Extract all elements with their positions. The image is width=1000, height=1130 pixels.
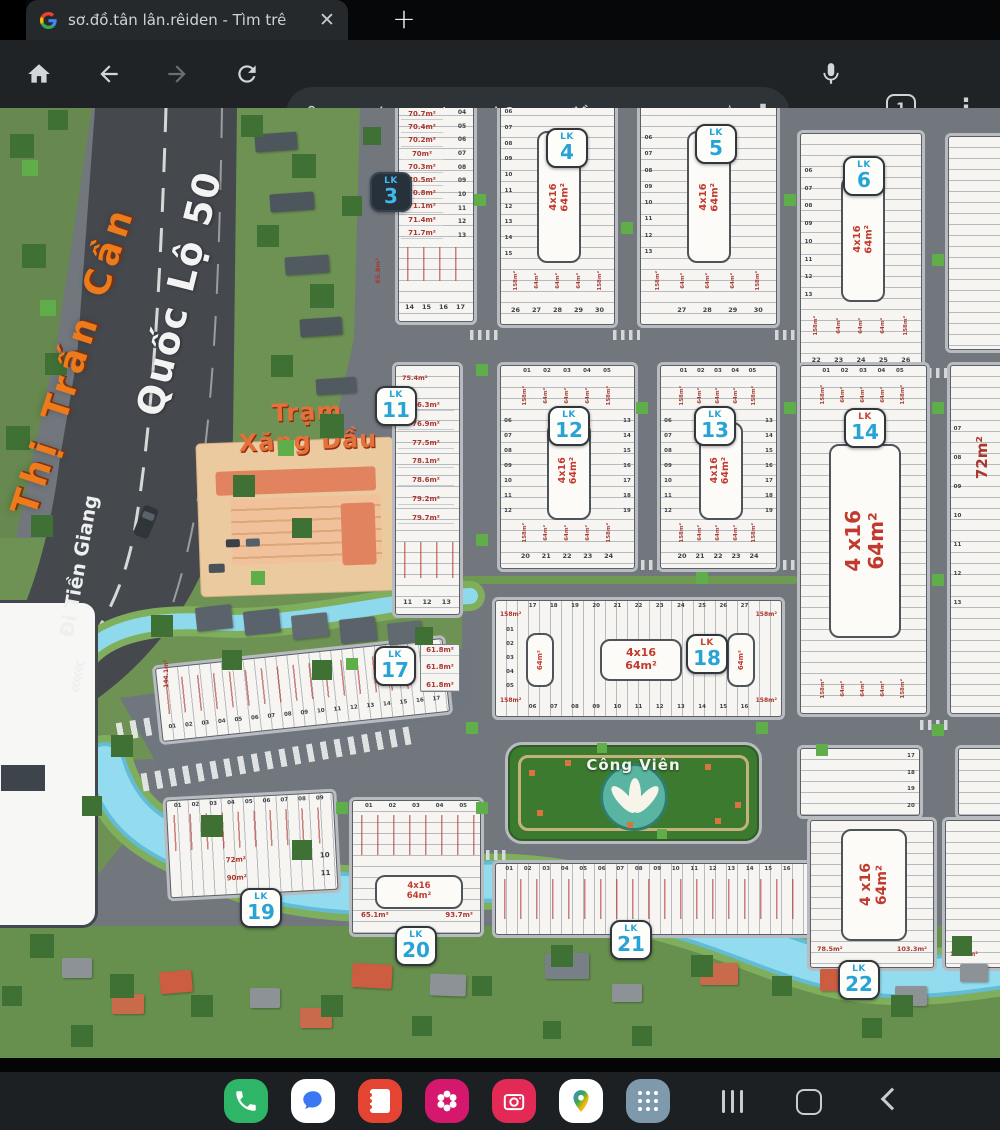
plot-number: 18 — [621, 493, 633, 499]
plot-number: 09 — [502, 156, 515, 162]
plot-number: 18 — [543, 603, 564, 612]
plot-number: 06 — [642, 135, 655, 141]
plot-number: 16 — [763, 463, 775, 469]
plot-number: 05 — [453, 123, 471, 130]
plot-number: 19 — [621, 508, 633, 514]
plot-number: 22 — [709, 552, 727, 562]
plot-area-label: 64m² — [840, 387, 846, 403]
plot-number: 07 — [952, 426, 963, 432]
plot-area-label: 158m² — [900, 679, 906, 699]
plot-area-label: 64m² — [715, 388, 721, 404]
reload-icon — [234, 61, 260, 87]
back-nav-button[interactable] — [881, 1088, 904, 1111]
plot-number: 03 — [557, 368, 577, 377]
tab-strip: sơ.đồ.tân lân.rêiden - Tìm trê ✕ + — [0, 0, 1000, 40]
map-image[interactable]: TrạmXăng Dầu 70.7m²70.4m²70.2m²70m²70.3m… — [0, 108, 1000, 1058]
plot-number: 06 — [662, 418, 674, 424]
plot-number: 20 — [586, 603, 607, 612]
plot-number: 10 — [607, 704, 628, 713]
plot-area-label: 64m² — [555, 273, 561, 289]
plot-number: 20 — [673, 552, 691, 562]
block-lk12: 0102030405 158m²64m²64m²64m²158m² 060708… — [500, 365, 635, 569]
plot-number: 14 — [502, 235, 515, 241]
plot-number: 11 — [502, 493, 514, 499]
block-badge-lk4: LK4 — [546, 128, 588, 168]
plot-number: 16 — [435, 303, 452, 313]
plot-number: 03 — [709, 368, 726, 377]
plot-area-label: 61.8m² — [421, 645, 459, 656]
plot-number: 17 — [522, 603, 543, 612]
block-partial: 07080910111213 72m² — [950, 365, 1000, 714]
plot-number: 04 — [556, 866, 575, 876]
plot-number: 03 — [504, 655, 516, 661]
plot-area-label: 64m² — [543, 388, 549, 404]
plot-area-label: 158m² — [820, 679, 826, 699]
plot-number: 19 — [564, 603, 585, 612]
plot-number: 12 — [649, 704, 670, 713]
plot-number: 05 — [744, 368, 761, 377]
plot-number: 08 — [502, 141, 515, 147]
block-badge-lk14: LK14 — [844, 408, 886, 448]
plot-number: 27 — [734, 603, 755, 612]
plot-area-label: 158m² — [655, 271, 661, 291]
plot-number: 16 — [778, 866, 797, 876]
plot-area-label: 64m² — [715, 525, 721, 541]
plot-number: 12 — [417, 598, 436, 608]
plot-area-label: 64m² — [730, 273, 736, 289]
house — [315, 377, 356, 396]
home-icon — [26, 61, 52, 87]
tab-title: sơ.đồ.tân lân.rêiden - Tìm trê — [68, 0, 318, 40]
plot-number: 13 — [502, 219, 515, 225]
house — [250, 988, 280, 1008]
plot-number: 04 — [453, 109, 471, 116]
plot-number: 09 — [648, 866, 667, 876]
plot-area-label: 70.4m² — [401, 122, 443, 133]
plot-number: 11 — [952, 542, 963, 548]
plot-number: 07 — [453, 150, 471, 157]
home-button[interactable] — [20, 55, 58, 93]
plot-number: 24 — [670, 603, 691, 612]
plot-number: 13 — [621, 418, 633, 424]
block-lk18: 1718192021222324252627 06070809101112131… — [495, 600, 782, 717]
plot-number: 05 — [504, 683, 516, 689]
plot-number: 04 — [222, 800, 240, 811]
home-nav-button[interactable] — [796, 1089, 822, 1115]
plot-number: 07 — [502, 433, 514, 439]
plot-area-label: 64m² — [585, 388, 591, 404]
block-badge-lk12: LK12 — [548, 406, 590, 446]
house — [351, 963, 392, 989]
new-tab-button[interactable]: + — [382, 0, 426, 40]
block-lk13: 0102030405 158m²64m²64m²64m²158m² 060708… — [660, 365, 777, 569]
plot-number: 13 — [952, 600, 963, 606]
plot-number: 04 — [727, 368, 744, 377]
plot-area-label: 70.2m² — [401, 135, 443, 146]
plot-number: 01 — [500, 866, 519, 876]
plot-number: 12 — [704, 866, 723, 876]
plot-number: 07 — [543, 704, 564, 713]
plot-area-label: 158m² — [751, 386, 757, 406]
block-badge-lk6: LK6 — [843, 156, 885, 196]
plot-number: 10 — [662, 478, 674, 484]
plot-number: 06 — [593, 866, 612, 876]
plot-number: 12 — [952, 571, 963, 577]
plot-number: 22 — [628, 603, 649, 612]
plot-number: 15 — [502, 251, 515, 257]
plot-number: 02 — [180, 721, 198, 734]
microphone-icon — [818, 61, 844, 87]
plot-number: 01 — [357, 803, 381, 813]
plot-number: 07 — [802, 186, 815, 192]
plot-number: 15 — [395, 699, 413, 712]
block-partial — [948, 136, 1000, 350]
plot-number: 28 — [695, 306, 721, 316]
phone-app-icon[interactable] — [224, 1079, 268, 1123]
plot-number: 12 — [662, 508, 674, 514]
plot-number: 21 — [607, 603, 628, 612]
plot-number: 17 — [905, 753, 917, 759]
plot-number: 11 — [642, 216, 655, 222]
plot-area-label: 158m² — [751, 523, 757, 543]
plot-number: 15 — [759, 866, 778, 876]
plot-area-label: 78.6m² — [398, 475, 454, 486]
plot-number: 13 — [763, 418, 775, 424]
plot-number: 05 — [597, 368, 617, 377]
plot-number: 06 — [257, 798, 275, 809]
plot-number: 06 — [246, 714, 264, 727]
house — [291, 612, 329, 640]
plot-number: 12 — [502, 204, 515, 210]
plot-area-label: 64m² — [697, 388, 703, 404]
plot-number: 11 — [329, 706, 347, 719]
plot-number: 29 — [568, 306, 589, 316]
plot-number: 18 — [763, 493, 775, 499]
plot-number: 14 — [763, 433, 775, 439]
plot-area-label: 64m² — [564, 525, 570, 541]
screen-gap — [0, 1058, 1000, 1072]
plot-area-label: 61.8m² — [421, 662, 459, 673]
plot-area-label: 158m² — [679, 386, 685, 406]
plot-number: 05 — [891, 368, 909, 377]
plot-number: 14 — [401, 303, 418, 313]
plot-area-label: 144.1m² — [163, 660, 170, 688]
plot-area-label: 158m² — [755, 271, 761, 291]
block-lk21: 01020304050607080910111213141516 148.3m² — [495, 863, 819, 935]
plot-area-label: 64m² — [564, 388, 570, 404]
plot-number: 23 — [649, 603, 670, 612]
contacts-app-icon[interactable] — [358, 1079, 402, 1123]
plot-number: 24 — [745, 552, 763, 562]
plot-number: 02 — [835, 368, 853, 377]
plot-number: 10 — [312, 707, 330, 720]
plot-number: 10 — [802, 239, 815, 245]
plot-number: 08 — [502, 448, 514, 454]
house — [284, 254, 329, 275]
house — [430, 973, 467, 996]
plot-number: 10 — [453, 191, 471, 198]
reload-button[interactable] — [228, 55, 266, 93]
plot-number: 11 — [628, 704, 649, 713]
block-partial: 111.4m² — [945, 820, 1000, 968]
plot-number: 17 — [452, 303, 469, 313]
plot-number: 04 — [577, 368, 597, 377]
plot-number: 04 — [504, 669, 516, 675]
plot-number: 09 — [296, 709, 314, 722]
plot-number: 03 — [197, 719, 215, 732]
park-area: Công Viên — [508, 745, 759, 841]
plot-area-label: 71.7m² — [401, 228, 443, 239]
plot-number: 11 — [398, 598, 417, 608]
block-badge-lk17: LK17 — [374, 646, 416, 686]
plot-area-label: 158m² — [522, 523, 528, 543]
plot-number: 10 — [642, 200, 655, 206]
crosswalk — [478, 850, 508, 860]
gallery-app-icon[interactable] — [425, 1079, 469, 1123]
plot-number: 16 — [621, 463, 633, 469]
block-badge-lk11: LK11 — [375, 386, 417, 426]
plot-area-label: 158m² — [900, 385, 906, 405]
plot-number: 15 — [621, 448, 633, 454]
plot-number: 11 — [662, 493, 674, 499]
plot-number: 08 — [952, 455, 963, 461]
plot-number: 02 — [504, 641, 516, 647]
block-lk19: 010203040506070809 72m²10 90m²11 — [166, 792, 339, 899]
plot-number: 09 — [802, 221, 815, 227]
block-lk20: 0102030405 4x1664m² 65.1m²93.7m² — [352, 800, 481, 934]
maps-app-icon[interactable] — [559, 1079, 603, 1123]
plot-number: 11 — [502, 188, 515, 194]
crosswalk — [613, 330, 640, 340]
messages-app-icon[interactable] — [291, 1079, 335, 1123]
plot-number: 09 — [311, 795, 329, 806]
plot-number: 20 — [515, 552, 536, 562]
plot-number: 26 — [713, 603, 734, 612]
plot-area-label: 64m² — [860, 681, 866, 697]
plot-number: 14 — [741, 866, 760, 876]
house — [243, 608, 281, 636]
plot-number: 16 — [734, 704, 755, 713]
block-lk3: 70.7m²70.4m²70.2m²70m²70.3m²70.5m²70.8m²… — [398, 108, 474, 322]
house — [195, 604, 233, 632]
plot-number: 06 — [453, 136, 471, 143]
plot-area-label: 158m² — [606, 523, 612, 543]
camera-app-icon[interactable] — [492, 1079, 536, 1123]
plot-number: 17 — [621, 478, 633, 484]
plot-number: 05 — [230, 716, 248, 729]
plot-number: 04 — [213, 718, 231, 731]
house — [300, 1008, 332, 1028]
plot-number: 14 — [692, 704, 713, 713]
app-drawer-icon[interactable] — [626, 1079, 670, 1123]
browser-tab[interactable]: sơ.đồ.tân lân.rêiden - Tìm trê ✕ — [26, 0, 348, 40]
plot-number: 03 — [854, 368, 872, 377]
block-badge-lk20: LK20 — [395, 926, 437, 966]
plot-number: 08 — [662, 448, 674, 454]
plot-area-label: 79.2m² — [398, 494, 454, 505]
plot-number: 13 — [453, 232, 471, 239]
plot-area-label: 70.7m² — [401, 109, 443, 120]
plot-area-label: 64m² — [858, 318, 864, 334]
plot-number: 22 — [557, 552, 578, 562]
plot-number: 03 — [404, 803, 428, 813]
plot-number: 02 — [186, 801, 204, 812]
house — [895, 986, 927, 1006]
house — [254, 132, 297, 153]
crosswalk — [470, 330, 500, 340]
voice-search-button[interactable] — [812, 55, 850, 93]
block-badge-lk18: LK18 — [686, 634, 728, 674]
plot-number: 13 — [722, 866, 741, 876]
plot-area-label: 158m² — [513, 271, 519, 291]
google-favicon — [40, 12, 57, 29]
plot-number: 08 — [630, 866, 649, 876]
plot-number: 11 — [802, 257, 815, 263]
plot-area-label: 64m² — [880, 681, 886, 697]
block-badge-lk3: LK3 — [370, 172, 412, 212]
plot-area-label: 158m² — [522, 386, 528, 406]
plot-number: 01 — [164, 723, 182, 736]
plot-number: 20 — [905, 803, 917, 809]
house — [700, 963, 738, 985]
plot-number: 10 — [502, 172, 515, 178]
plot-area-label: 65.8m² — [374, 258, 382, 284]
back-arrow-icon — [96, 61, 122, 87]
plot-number: 18 — [905, 770, 917, 776]
gas-station-area — [195, 437, 398, 598]
plot-number: 12 — [453, 218, 471, 225]
plot-number: 05 — [574, 866, 593, 876]
plot-number: 13 — [802, 292, 815, 298]
browser-toolbar: google.com/search?q=sơ.đồ ☆ 1 ⋮ — [0, 40, 1000, 108]
block-badge-lk19: LK19 — [240, 888, 282, 928]
plot-number: 21 — [691, 552, 709, 562]
house — [299, 317, 342, 338]
plot-area-label: 71.4m² — [401, 215, 443, 226]
plot-number: 05 — [451, 803, 475, 813]
plot-number: 07 — [662, 433, 674, 439]
plot-number: 08 — [293, 796, 311, 807]
plot-number: 02 — [537, 368, 557, 377]
forward-button[interactable] — [158, 55, 196, 93]
house — [112, 994, 144, 1014]
plot-number: 08 — [279, 711, 297, 724]
plot-number: 05 — [240, 799, 258, 810]
plot-number: 01 — [817, 368, 835, 377]
plot-number: 13 — [642, 249, 655, 255]
plot-number: 19 — [905, 786, 917, 792]
block-badge-lk21: LK21 — [610, 920, 652, 960]
plot-area-label: 158m² — [606, 386, 612, 406]
plot-area-label: 64m² — [697, 525, 703, 541]
plot-area-label: 64m² — [880, 318, 886, 334]
plot-number: 09 — [662, 463, 674, 469]
plot-area-label: 64m² — [880, 387, 886, 403]
plot-area-label: 64m² — [733, 388, 739, 404]
plot-area-label: 70.3m² — [401, 162, 443, 173]
plot-number: 10 — [667, 866, 686, 876]
plot-area-label: 158m² — [813, 316, 819, 336]
plot-number: 13 — [362, 702, 380, 715]
plot-area-label: 64m² — [576, 273, 582, 289]
plot-number: 11 — [453, 205, 471, 212]
plot-number: 15 — [763, 448, 775, 454]
plot-number: 03 — [537, 866, 556, 876]
plot-area-label: 158m² — [820, 385, 826, 405]
plot-number: 01 — [517, 368, 537, 377]
plot-number: 10 — [952, 513, 963, 519]
plot-number: 09 — [952, 484, 963, 490]
recents-button[interactable] — [722, 1090, 725, 1113]
plot-number: 11 — [685, 866, 704, 876]
plot-number: 29 — [720, 306, 746, 316]
plot-number: 13 — [670, 704, 691, 713]
plot-area-label: 64m² — [836, 318, 842, 334]
plot-number: 09 — [502, 463, 514, 469]
plot-number: 04 — [872, 368, 890, 377]
plot-area-label: 70m² — [401, 149, 443, 160]
plot-area-label: 78.1m² — [398, 456, 454, 467]
plot-area-label: 77.5m² — [398, 438, 454, 449]
block-partial — [958, 748, 1000, 816]
plot-number: 09 — [586, 704, 607, 713]
plot-number: 10 — [502, 478, 514, 484]
plot-number: 03 — [204, 801, 222, 812]
plot-number: 19 — [763, 508, 775, 514]
plot-number: 06 — [522, 704, 543, 713]
house — [387, 620, 423, 645]
block-badge-lk5: LK5 — [695, 124, 737, 164]
lk17-side-areas: 61.8m²61.8m²61.8m² — [420, 644, 460, 692]
plot-number: 23 — [727, 552, 745, 562]
house — [612, 984, 642, 1002]
block-lk22: 4 x1664m² 78.5m²103.3m² — [810, 820, 934, 968]
forward-arrow-icon — [164, 61, 190, 87]
plot-number: 01 — [169, 802, 187, 813]
plot-area-label: 64m² — [705, 273, 711, 289]
plot-number: 07 — [611, 866, 630, 876]
plot-area-label: 64m² — [534, 273, 540, 289]
plot-area-label: 79.7m² — [398, 513, 454, 524]
plot-number: 14 — [378, 700, 396, 713]
park-label: Công Viên — [510, 756, 757, 774]
plot-number: 08 — [642, 168, 655, 174]
plot-number: 02 — [519, 866, 538, 876]
plot-number: 12 — [642, 233, 655, 239]
plot-number: 30 — [746, 306, 772, 316]
plot-number: 16 — [411, 697, 429, 710]
plot-number: 27 — [526, 306, 547, 316]
plot-number: 14 — [621, 433, 633, 439]
plot-number: 07 — [502, 125, 515, 131]
plot-number: 07 — [275, 797, 293, 808]
tab-close-icon[interactable]: ✕ — [314, 0, 340, 40]
plot-number: 28 — [547, 306, 568, 316]
plot-number: 21 — [536, 552, 557, 562]
plot-number: 12 — [345, 704, 363, 717]
crosswalk — [775, 330, 802, 340]
plot-area-label: 158m² — [903, 316, 909, 336]
plot-number: 06 — [502, 109, 515, 115]
plot-number: 15 — [713, 704, 734, 713]
plot-number: 12 — [502, 508, 514, 514]
back-button[interactable] — [90, 55, 128, 93]
block-partial: 17181920 — [800, 748, 920, 816]
house — [62, 958, 92, 978]
plot-area-label: 158m² — [597, 271, 603, 291]
crosswalk — [920, 720, 950, 730]
plot-area-label: 64m² — [840, 681, 846, 697]
